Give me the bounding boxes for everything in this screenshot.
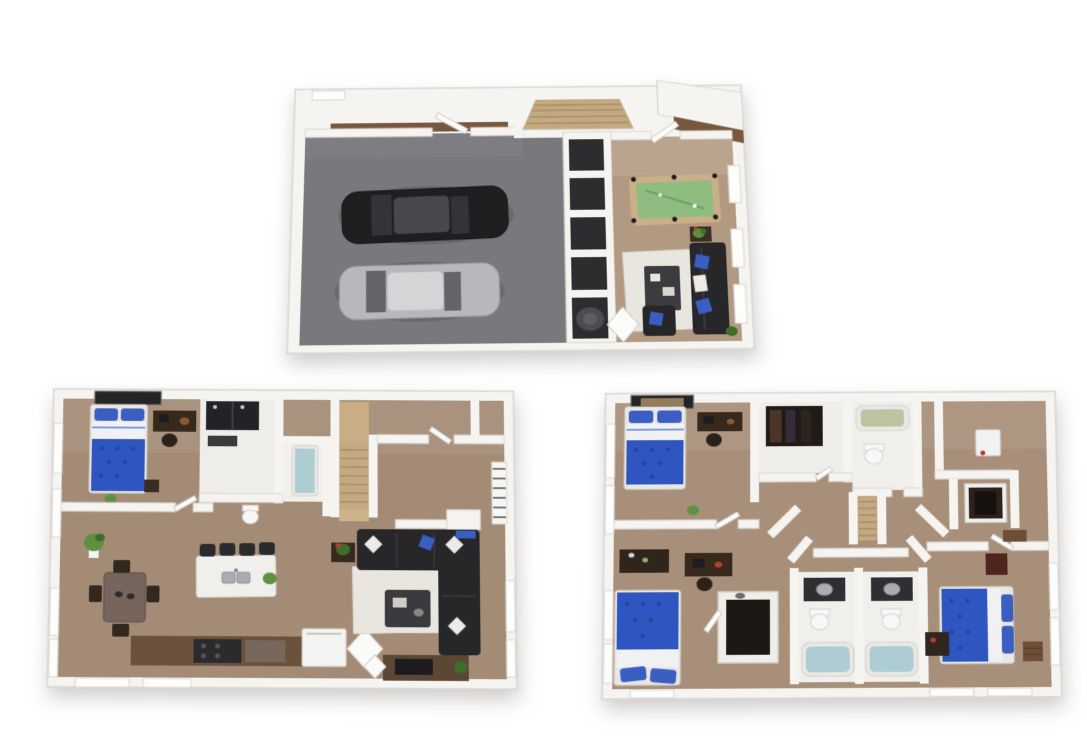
bath-water (861, 409, 904, 426)
car-roof (388, 272, 444, 311)
window (52, 489, 62, 538)
chair (706, 433, 722, 446)
window (48, 639, 58, 677)
chair (697, 577, 713, 591)
desk (925, 632, 949, 656)
wall (934, 401, 944, 478)
wall (949, 479, 959, 529)
closet-cell (570, 178, 606, 210)
table-decor (650, 274, 660, 282)
wall (877, 492, 886, 544)
pillow (694, 254, 710, 270)
table-decor (393, 598, 407, 608)
garage-level-plan (285, 78, 760, 361)
desk-item (159, 414, 169, 422)
pillow (1002, 626, 1014, 654)
washer (976, 430, 1001, 456)
wall (369, 435, 378, 518)
closet-cell (569, 139, 604, 171)
bed-sheet (987, 589, 1002, 662)
sink (222, 572, 235, 583)
toilet (811, 614, 829, 630)
bar-stool (259, 542, 275, 555)
bed-sheet (92, 422, 145, 440)
desk-item (714, 562, 722, 568)
shower-interior (975, 491, 997, 514)
table-decor (662, 287, 674, 296)
faucet (234, 568, 238, 572)
car-windshield (371, 195, 392, 236)
wall (305, 128, 432, 137)
rug-pattern (641, 398, 684, 406)
staircase (857, 496, 877, 541)
car-rear-window (451, 196, 470, 234)
dining-chair (89, 585, 102, 602)
toilet (242, 510, 258, 524)
sink (884, 583, 900, 595)
half-wall (447, 510, 481, 530)
window (75, 678, 129, 687)
bar-stool (219, 543, 235, 556)
wall (750, 402, 759, 502)
wall (759, 473, 816, 482)
bath-water (870, 646, 914, 672)
floor-light (611, 136, 734, 176)
pillow (456, 531, 476, 539)
floor-plan-bedroom-level (600, 388, 1065, 707)
car-windshield (366, 271, 386, 313)
closet-clothes (770, 410, 782, 443)
bed-duvet (617, 592, 679, 649)
counter-sink (245, 640, 285, 662)
wall (853, 488, 892, 497)
wall (829, 473, 853, 482)
wall (843, 402, 852, 483)
appliance-knob (240, 405, 244, 409)
window (49, 588, 59, 635)
pillow (620, 666, 647, 683)
floor-plan-garage-level (285, 78, 760, 361)
wall (330, 400, 339, 517)
wall (904, 488, 923, 497)
burner (215, 644, 220, 649)
window (606, 424, 615, 478)
wall (1010, 470, 1020, 528)
wall (199, 493, 283, 502)
wall (927, 542, 988, 551)
toilet (882, 614, 900, 630)
floor-plan-living-level (45, 385, 520, 697)
pillow (1001, 594, 1013, 622)
sink (237, 572, 250, 583)
wall (395, 520, 452, 529)
window (143, 678, 191, 687)
wall (514, 100, 523, 138)
wall (849, 492, 858, 544)
wall (322, 439, 331, 516)
wall (738, 520, 759, 529)
shower-water (295, 449, 315, 493)
desk-item (693, 559, 705, 568)
desk-item (703, 416, 714, 424)
window (605, 486, 614, 534)
wall (193, 503, 213, 512)
closet-clothes (726, 600, 770, 655)
window (988, 688, 1032, 696)
desk (685, 553, 733, 577)
pillow (629, 411, 654, 424)
window (603, 644, 612, 684)
wall (935, 470, 1012, 479)
stair-landing (339, 510, 369, 522)
bench (144, 480, 159, 493)
wall (854, 568, 864, 684)
wall (470, 401, 479, 443)
window (604, 591, 613, 640)
wall (1011, 541, 1049, 550)
bed-sheet (616, 649, 678, 667)
dining-table (103, 573, 146, 622)
car-rear-window (444, 272, 461, 311)
window (312, 91, 345, 100)
window (1049, 563, 1059, 610)
stair-landing-upper (339, 402, 368, 444)
dining-chair (113, 560, 130, 573)
plant (263, 572, 277, 584)
pillow (121, 408, 145, 421)
wall (614, 520, 717, 529)
plant-flower (335, 543, 341, 548)
tv (395, 659, 433, 675)
dining-chair (146, 586, 159, 603)
wall (813, 548, 908, 557)
main-living-level-plan (45, 385, 520, 697)
coffee-table (385, 590, 431, 628)
wall (611, 131, 652, 140)
balcony-railing (492, 462, 507, 524)
window (731, 229, 745, 267)
bedroom-level-plan (600, 388, 1065, 707)
wall (913, 402, 923, 496)
bookshelf (1003, 530, 1027, 542)
bedroom-rug (95, 391, 162, 405)
bookshelf (1023, 641, 1043, 661)
closet-clothes (801, 410, 811, 443)
entry-floor (523, 138, 564, 179)
window (1050, 618, 1060, 665)
window (506, 581, 516, 632)
wall (790, 568, 799, 684)
window (53, 423, 63, 473)
floor-plan-canvas (0, 0, 1087, 741)
desk-item (727, 419, 735, 425)
wall (918, 567, 928, 683)
bath-water (806, 646, 850, 672)
wall (274, 400, 283, 504)
closet-clothes (785, 410, 795, 443)
laundry-shelf (208, 436, 238, 447)
window (728, 165, 741, 202)
bed-duvet (626, 440, 683, 485)
pillow (693, 274, 708, 292)
bar-stool (239, 543, 255, 556)
pillow (649, 311, 664, 326)
staircase (522, 99, 634, 130)
pillow (94, 408, 118, 421)
dining-chair (112, 624, 129, 637)
bar-stool (200, 544, 216, 557)
closet-cell (570, 217, 606, 250)
window (930, 688, 974, 696)
decor (735, 593, 745, 599)
toilet (865, 449, 883, 464)
window (506, 640, 515, 678)
pillow (650, 668, 677, 684)
window (630, 690, 674, 698)
wall (61, 502, 176, 511)
wall (378, 435, 429, 444)
bed-sheet (627, 424, 684, 441)
desk-item (180, 417, 190, 425)
car-roof (393, 195, 450, 234)
nightstand (985, 553, 1007, 575)
stove (193, 639, 241, 663)
burner (215, 653, 220, 658)
closet-cell (571, 257, 607, 290)
sink (816, 584, 832, 596)
pillow (657, 410, 682, 423)
wall (680, 131, 732, 140)
window (733, 284, 747, 323)
